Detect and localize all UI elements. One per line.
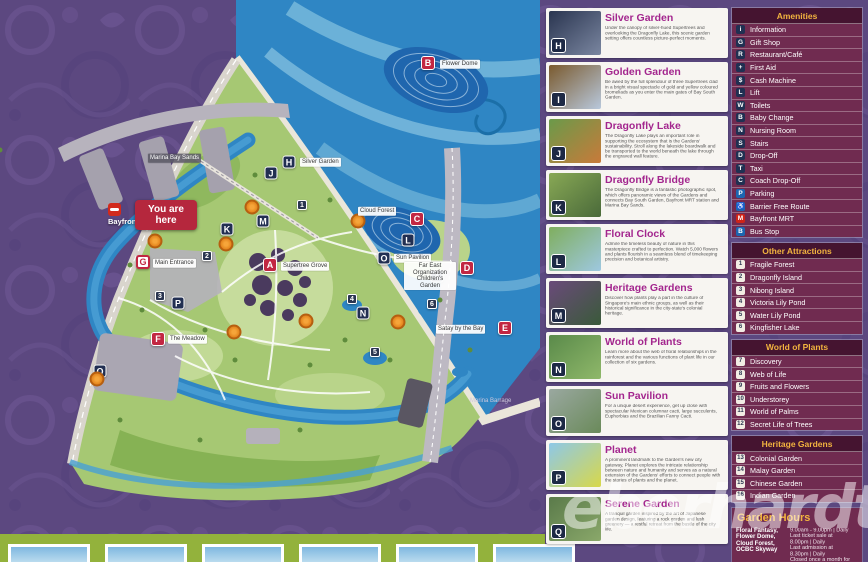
garden-hours-title: Garden Hours [737, 512, 862, 524]
map-marker-F[interactable]: F [151, 332, 165, 346]
attraction-card[interactable]: OSun PavilionFor a unique desert experie… [546, 386, 728, 436]
legend-label: Chinese Garden [750, 479, 802, 488]
attraction-card[interactable]: LFloral ClockAdmire the timeless beauty … [546, 224, 728, 274]
photo-thumbnail [105, 544, 187, 562]
map-label: Satay by the Bay [436, 325, 485, 334]
legend-label: Baby Change [750, 113, 794, 122]
number-badge: 14 [736, 466, 745, 475]
legend-label: Web of Life [750, 370, 786, 379]
legend-label: Barrier Free Route [750, 202, 810, 211]
map-label: Sun Pavilion [394, 254, 431, 263]
legend-label: Fragile Forest [750, 260, 794, 269]
attraction-title: Heritage Gardens [605, 282, 721, 294]
heritage-gardens-panel: Heritage Gardens13Colonial Garden14Malay… [732, 436, 862, 501]
bus-stop-icon: B [736, 227, 745, 236]
attraction-title: Dragonfly Lake [605, 120, 721, 132]
map-marker-M[interactable]: M [257, 215, 270, 228]
park-map[interactable]: ABCDEFGHIJKLMNOPQ123456Marina Bay SandsS… [0, 0, 540, 562]
attraction-description: A prominent landmark to the Garden's new… [605, 458, 721, 484]
legend-label: Kingfisher Lake [750, 323, 800, 332]
attraction-photo: K [549, 173, 601, 217]
supertree-icon[interactable] [90, 372, 105, 387]
legend-row[interactable]: BBus Stop [732, 226, 862, 238]
legend-label: Understorey [750, 395, 789, 404]
mrt-icon: M [736, 214, 745, 223]
legend-row[interactable]: WToilets [732, 100, 862, 113]
baby-change-icon: B [736, 113, 745, 122]
attraction-title: Planet [605, 444, 721, 456]
attraction-letter-badge: K [551, 200, 566, 215]
parking-icon: P [736, 189, 745, 198]
legend-label: Colonial Garden [750, 454, 802, 463]
legend-row[interactable]: LLift [732, 87, 862, 100]
map-marker-C[interactable]: C [410, 212, 424, 226]
attraction-card[interactable]: MHeritage GardensDiscover how plants pla… [546, 278, 728, 328]
legend-row[interactable]: 6Kingfisher Lake [732, 322, 862, 334]
legend-row[interactable]: SStairs [732, 137, 862, 150]
number-badge: 7 [736, 357, 745, 366]
legend-row[interactable]: 4Victoria Lily Pond [732, 297, 862, 310]
attraction-card[interactable]: IGolden GardenBe awed by the full splend… [546, 62, 728, 112]
photo-thumbnail [299, 544, 381, 562]
map-marker-D[interactable]: D [460, 261, 474, 275]
legend-label: Secret Life of Trees [750, 420, 812, 429]
number-badge: 1 [736, 260, 745, 269]
other-attractions-panel: Other Attractions1Fragile Forest2Dragonf… [732, 243, 862, 334]
legend-label: Bayfront MRT [750, 214, 794, 223]
map-marker-2[interactable]: 2 [202, 251, 212, 261]
legend-row[interactable]: DDrop-Off [732, 150, 862, 163]
legend-label: Water Lily Pond [750, 311, 800, 320]
garden-hours-panel: Garden Hours Floral Fantasy, Flower Dome… [732, 508, 862, 562]
legend-row[interactable]: ♿Barrier Free Route [732, 200, 862, 213]
legend-row[interactable]: iInformation [732, 24, 862, 37]
map-label: Marina Bay Sands [148, 154, 201, 163]
number-badge: 9 [736, 382, 745, 391]
legend-label: Coach Drop-Off [750, 176, 800, 185]
venue-name: Floral Fantasy, Flower Dome, Cloud Fores… [736, 528, 786, 562]
attraction-description: The Dragonfly Lake plays an important ro… [605, 134, 721, 160]
map-marker-5[interactable]: 5 [370, 347, 380, 357]
panel-header: World of Plants [732, 340, 862, 356]
park-map-sign: ABCDEFGHIJKLMNOPQ123456Marina Bay SandsS… [0, 0, 868, 562]
stairs-icon: S [736, 139, 745, 148]
supertree-icon[interactable] [391, 315, 406, 330]
attraction-photo: I [549, 65, 601, 109]
legend-row[interactable]: 7Discovery [732, 356, 862, 369]
supertree-icon[interactable] [351, 214, 366, 229]
map-label: The Meadow [168, 335, 207, 344]
legend-row[interactable]: 8Web of Life [732, 368, 862, 381]
attraction-letter-badge: L [551, 254, 566, 269]
legend-row[interactable]: 2Dragonfly Island [732, 272, 862, 285]
legend-row[interactable]: 1Fragile Forest [732, 259, 862, 272]
attractions-list: HSilver GardenUnder the canopy of silver… [546, 8, 728, 544]
supertree-icon[interactable] [148, 234, 163, 249]
attraction-letter-badge: J [551, 146, 566, 161]
attraction-description: Admire the timeless beauty of nature in … [605, 242, 721, 263]
legend-row[interactable]: MBayfront MRT [732, 213, 862, 226]
legend-row[interactable]: 5Water Lily Pond [732, 309, 862, 322]
legend-label: Dragonfly Island [750, 273, 802, 282]
lift-icon: L [736, 88, 745, 97]
map-label: Marina Barrage [468, 397, 513, 406]
panel-header: Amenities [732, 8, 862, 24]
attraction-description: Be awed by the full splendour of three S… [605, 80, 721, 101]
attraction-photo: P [549, 443, 601, 487]
number-badge: 3 [736, 286, 745, 295]
attraction-card[interactable]: QSerene GardenA tranquil garden inspired… [546, 494, 728, 544]
map-marker-A[interactable]: A [263, 258, 277, 272]
attraction-photo: H [549, 11, 601, 55]
photo-thumbnail [8, 544, 90, 562]
legend-row[interactable]: GGift Shop [732, 37, 862, 50]
legend-label: Stairs [750, 139, 768, 148]
number-badge: 16 [736, 491, 745, 500]
number-badge: 12 [736, 420, 745, 429]
first-aid-icon: + [736, 63, 745, 72]
coach-drop-off-icon: C [736, 176, 745, 185]
drop-off-icon: D [736, 151, 745, 160]
legend-row[interactable]: NNursing Room [732, 125, 862, 138]
legend-row[interactable]: 10Understorey [732, 393, 862, 406]
legend-row[interactable]: 9Fruits and Flowers [732, 381, 862, 394]
map-marker-B[interactable]: B [421, 56, 435, 70]
map-marker-6[interactable]: 6 [427, 299, 437, 309]
you-are-here-badge: You are here [135, 200, 197, 230]
legend-label: Nursing Room [750, 126, 796, 135]
legend-label: Information [750, 25, 786, 34]
information-icon: i [736, 25, 745, 34]
barrier-free-icon: ♿ [736, 202, 745, 211]
map-marker-1[interactable]: 1 [297, 200, 307, 210]
legend-label: Victoria Lily Pond [750, 298, 805, 307]
legend-row[interactable]: TTaxi [732, 163, 862, 176]
panel-header: Heritage Gardens [732, 436, 862, 452]
map-label: Silver Garden [300, 158, 341, 167]
attraction-letter-badge: P [551, 470, 566, 485]
attraction-title: Silver Garden [605, 12, 721, 24]
photo-thumbnail [396, 544, 478, 562]
photo-thumbnail [202, 544, 284, 562]
legend-label: Taxi [750, 164, 763, 173]
mrt-logo-icon [108, 203, 121, 216]
attraction-title: Sun Pavilion [605, 390, 721, 402]
attraction-photo: Q [549, 497, 601, 541]
legend-row[interactable]: 15Chinese Garden [732, 477, 862, 490]
legend-label: Toilets [750, 101, 770, 110]
attraction-letter-badge: M [551, 308, 566, 323]
number-badge: 5 [736, 311, 745, 320]
map-marker-O[interactable]: O [378, 252, 391, 265]
legend-label: Nibong Island [750, 286, 794, 295]
number-badge: 2 [736, 273, 745, 282]
map-marker-E[interactable]: E [498, 321, 512, 335]
attraction-title: Serene Garden [605, 498, 721, 510]
map-marker-P[interactable]: P [172, 297, 185, 310]
attraction-description: The Dragonfly Bridge is a fantastic phot… [605, 188, 721, 209]
amenities-panel: AmenitiesiInformationGGift ShopRRestaura… [732, 8, 862, 237]
legend-label: Parking [750, 189, 774, 198]
map-marker-H[interactable]: H [283, 156, 296, 169]
attraction-description: A tranquil garden inspired by the art of… [605, 512, 721, 533]
legend-row[interactable]: 3Nibong Island [732, 284, 862, 297]
attraction-card[interactable]: KDragonfly BridgeThe Dragonfly Bridge is… [546, 170, 728, 220]
attraction-card[interactable]: NWorld of PlantsLearn more about the web… [546, 332, 728, 382]
legend-row[interactable]: PParking [732, 188, 862, 201]
map-label: Cloud Forest [358, 207, 396, 216]
number-badge: 6 [736, 323, 745, 332]
supertree-icon[interactable] [219, 237, 234, 252]
legend-label: First Aid [750, 63, 776, 72]
legend-column: AmenitiesiInformationGGift ShopRRestaura… [732, 8, 862, 562]
supertree-icon[interactable] [245, 200, 260, 215]
attraction-card[interactable]: PPlanetA prominent landmark to the Garde… [546, 440, 728, 490]
gift-shop-icon: G [736, 38, 745, 47]
attraction-title: Dragonfly Bridge [605, 174, 721, 186]
number-badge: 11 [736, 407, 745, 416]
map-marker-G[interactable]: G [136, 255, 150, 269]
attraction-title: Floral Clock [605, 228, 721, 240]
garden-hours-entry: Floral Fantasy, Flower Dome, Cloud Fores… [732, 527, 862, 562]
supertree-icon[interactable] [227, 325, 242, 340]
attraction-description: For a unique desert experience, get up c… [605, 404, 721, 419]
attraction-photo: L [549, 227, 601, 271]
attraction-letter-badge: Q [551, 524, 566, 539]
legend-label: Restaurant/Café [750, 50, 802, 59]
legend-label: Gift Shop [750, 38, 780, 47]
legend-row[interactable]: 13Colonial Garden [732, 452, 862, 465]
attraction-photo: M [549, 281, 601, 325]
attraction-photo: O [549, 389, 601, 433]
legend-row[interactable]: CCoach Drop-Off [732, 175, 862, 188]
attraction-photo: J [549, 119, 601, 163]
legend-row[interactable]: 12Secret Life of Trees [732, 419, 862, 431]
attraction-letter-badge: O [551, 416, 566, 431]
legend-label: Fruits and Flowers [750, 382, 809, 391]
legend-label: Discovery [750, 357, 782, 366]
supertree-icon[interactable] [299, 314, 314, 329]
photo-thumbnail [493, 544, 575, 562]
legend-label: World of Palms [750, 407, 799, 416]
attraction-letter-badge: N [551, 362, 566, 377]
attraction-title: World of Plants [605, 336, 721, 348]
legend-label: Drop-Off [750, 151, 777, 160]
legend-label: Bus Stop [750, 227, 779, 236]
legend-row[interactable]: RRestaurant/Café [732, 49, 862, 62]
cash-machine-icon: $ [736, 76, 745, 85]
panel-header: Other Attractions [732, 243, 862, 259]
attraction-description: Under the canopy of silver-hued Supertre… [605, 26, 721, 41]
number-badge: 8 [736, 370, 745, 379]
legend-row[interactable]: 11World of Palms [732, 406, 862, 419]
number-badge: 13 [736, 454, 745, 463]
map-label: Flower Dome [440, 60, 480, 69]
attraction-card[interactable]: HSilver GardenUnder the canopy of silver… [546, 8, 728, 58]
venue-hours: 9.00am - 9.00pm | DailyLast ticket sale … [790, 528, 853, 562]
world-of-plants-panel: World of Plants7Discovery8Web of Life9Fr… [732, 340, 862, 431]
attraction-card[interactable]: JDragonfly LakeThe Dragonfly Lake plays … [546, 116, 728, 166]
legend-label: Malay Garden [750, 466, 795, 475]
legend-row[interactable]: $Cash Machine [732, 74, 862, 87]
number-badge: 4 [736, 298, 745, 307]
legend-label: Cash Machine [750, 76, 796, 85]
attraction-letter-badge: H [551, 38, 566, 53]
legend-row[interactable]: 14Malay Garden [732, 465, 862, 478]
attraction-description: Discover how plants play a part in the c… [605, 296, 721, 317]
attraction-photo: N [549, 335, 601, 379]
map-marker-layer: ABCDEFGHIJKLMNOPQ123456Marina Bay SandsS… [0, 0, 540, 562]
map-label: Supertree Grove [281, 262, 329, 271]
map-marker-L[interactable]: L [402, 234, 415, 247]
legend-row[interactable]: BBaby Change [732, 112, 862, 125]
restaurant-icon: R [736, 50, 745, 59]
map-marker-K[interactable]: K [221, 223, 234, 236]
map-label: Main Entrance [153, 259, 196, 268]
map-marker-J[interactable]: J [265, 167, 278, 180]
number-badge: 10 [736, 395, 745, 404]
number-badge: 15 [736, 479, 745, 488]
legend-row[interactable]: +First Aid [732, 62, 862, 75]
attraction-description: Learn more about the web of floral relat… [605, 350, 721, 365]
nursing-room-icon: N [736, 126, 745, 135]
photo-strip [0, 534, 545, 562]
attraction-letter-badge: I [551, 92, 566, 107]
legend-label: Lift [750, 88, 760, 97]
map-marker-4[interactable]: 4 [347, 294, 357, 304]
map-label: Far East Organization Children's Garden [404, 262, 456, 290]
taxi-icon: T [736, 164, 745, 173]
attraction-title: Golden Garden [605, 66, 721, 78]
map-marker-3[interactable]: 3 [155, 291, 165, 301]
legend-label: Indian Garden [750, 491, 796, 500]
toilets-icon: W [736, 101, 745, 110]
legend-row[interactable]: 16Indian Garden [732, 490, 862, 502]
map-marker-N[interactable]: N [357, 307, 370, 320]
